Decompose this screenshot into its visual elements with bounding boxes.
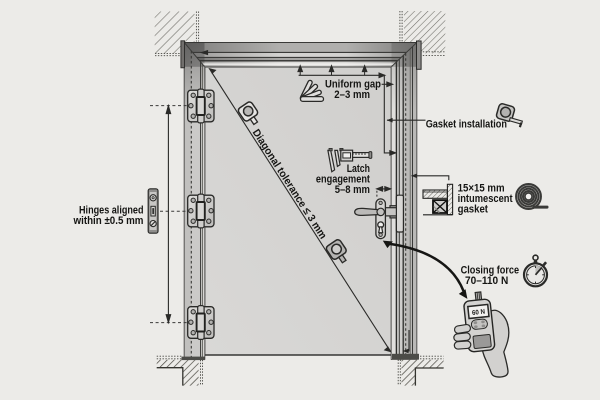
svg-text:2–3 mm: 2–3 mm <box>334 89 370 101</box>
svg-text:within ±0.5 mm: within ±0.5 mm <box>73 215 144 227</box>
svg-text:Gasket installation: Gasket installation <box>426 118 507 130</box>
svg-text:60 N: 60 N <box>472 309 486 317</box>
svg-text:gasket: gasket <box>458 204 489 216</box>
svg-text:5–8 mm: 5–8 mm <box>335 184 370 196</box>
svg-text:70–110 N: 70–110 N <box>465 275 508 287</box>
